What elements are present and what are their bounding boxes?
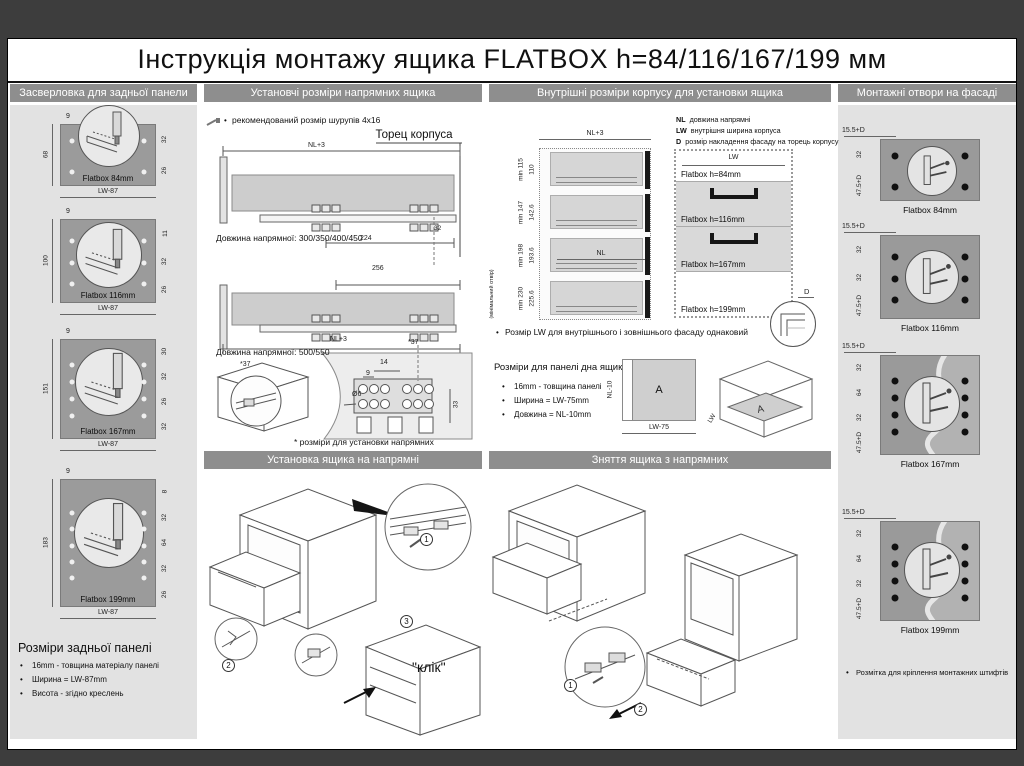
drill-hole: [962, 578, 969, 585]
screw-note: рекомендований розмір шурупів 4x16: [232, 115, 380, 125]
panel-label: Flatbox 199mm: [880, 625, 980, 635]
dim-label: 100: [43, 241, 50, 281]
install-drawing: [204, 471, 482, 739]
drill-hole: [141, 260, 146, 265]
dim-label: 47.5+D: [857, 175, 864, 196]
drill-hole: [891, 395, 898, 402]
legend-abbr: NL: [676, 115, 686, 124]
dim-label: 32: [161, 514, 168, 521]
cavity-stack: [539, 148, 651, 320]
drill-hole: [141, 414, 146, 419]
panel-label: Flatbox 167mm: [61, 427, 155, 436]
drill-hole: [962, 296, 969, 303]
dim-line: [539, 139, 651, 140]
drill-hole: [70, 281, 75, 286]
right-dims: 11 32 26: [158, 219, 172, 303]
dim-label: 33: [453, 385, 460, 425]
dim-label: 9: [366, 370, 370, 377]
step-marker: 3: [400, 615, 413, 628]
bullet-dot: •: [502, 410, 505, 419]
facade-panel-199: [880, 521, 980, 621]
right-dims: 30 32 26 32: [158, 339, 172, 439]
drill-hole: [70, 414, 75, 419]
front-strip: [645, 280, 650, 318]
right-dims: 8 32 64 32 26: [158, 479, 172, 607]
bullet-item: Довжина = NL-10mm: [514, 410, 591, 419]
bullet-dot: •: [502, 382, 505, 391]
dim-label: 15.5+D: [842, 127, 865, 134]
drill-hole: [70, 510, 75, 515]
drill-hole: [141, 397, 146, 402]
left-dims: 32 47.5+D: [846, 139, 874, 201]
bullet-item: 16mm - товщина матеріалу панелі: [32, 661, 159, 670]
right-dims: 32 26: [158, 124, 172, 186]
drill-hole: [70, 260, 75, 265]
dim-label: 26: [161, 398, 168, 405]
dim-label: 32: [856, 273, 863, 280]
header-install: Установка ящика на напрямні: [204, 451, 482, 469]
bullet-item: Висота - згідно креслень: [32, 689, 124, 698]
drill-hole: [962, 378, 969, 385]
drill-hole: [891, 561, 898, 568]
header-back-panel: Засверловка для задньої панели: [10, 84, 197, 102]
dim-label: LW-87: [60, 188, 156, 195]
drill-hole: [891, 254, 898, 261]
drill-hole: [141, 510, 146, 515]
dim-line: [60, 314, 156, 315]
dim-label: NL+3: [308, 142, 325, 149]
dim-line: [844, 352, 896, 353]
hole-grid: [61, 480, 155, 606]
dim-label: 142.6: [529, 193, 536, 233]
drawer-box-3d: A: [704, 353, 820, 445]
dim-label: 32: [856, 580, 863, 587]
drill-hole: [891, 578, 898, 585]
panel-label: Flatbox 116mm: [880, 323, 980, 333]
drill-hole: [141, 559, 146, 564]
dim-label: 64: [161, 539, 168, 546]
legend-text: довжина напрямні: [690, 115, 751, 124]
drill-hole: [962, 544, 969, 551]
cavity-row: [550, 152, 643, 186]
dim-label: 47.5+D: [857, 432, 864, 453]
back-panel-199: Flatbox 199mm: [60, 479, 156, 607]
front-strip: [645, 194, 650, 232]
drill-hole: [141, 281, 146, 286]
drill-hole: [962, 429, 969, 436]
dim-label: 9: [66, 208, 70, 215]
dim-label: min 147: [518, 193, 525, 233]
dim-label: Ø6: [352, 391, 361, 398]
front-167: Flatbox h=167mm: [676, 226, 791, 271]
dim-label: min 115: [518, 150, 525, 190]
drill-hole: [962, 561, 969, 568]
dim-label: 9: [66, 113, 70, 120]
dim-label: 32: [161, 136, 168, 143]
cabinet-front-view: LW Flatbox h=84mm Flatbox h=116mm Flatbo…: [674, 149, 793, 318]
dim-label: D: [804, 287, 809, 296]
dim-label: min 230: [518, 279, 525, 319]
rails-caption: * розміри для установки напрямних: [294, 437, 434, 447]
drill-hole: [70, 138, 75, 143]
remove-drawing: [489, 471, 831, 739]
dim-line: [52, 479, 53, 607]
rails-drawing: [204, 105, 482, 451]
dim-label: 224: [360, 235, 372, 242]
drill-hole: [962, 395, 969, 402]
dim-label: 183: [43, 523, 50, 563]
left-dims: 32 32 47.5+D: [846, 235, 874, 319]
drill-hole: [962, 183, 969, 190]
dim-label: 32: [856, 151, 863, 158]
panel-label: Flatbox 84mm: [880, 205, 980, 215]
hole-grid: [881, 522, 979, 620]
dim-line: [557, 259, 645, 260]
drill-hole: [70, 380, 75, 385]
corner-sketch-icon: [771, 302, 816, 347]
dim-label: min 198: [518, 236, 525, 276]
dim-line: [844, 136, 896, 137]
front-strip: [645, 151, 650, 189]
drill-hole: [962, 595, 969, 602]
drill-hole: [141, 239, 146, 244]
front-label: Flatbox h=84mm: [681, 170, 741, 179]
dim-label: 256: [372, 265, 384, 272]
drill-hole: [962, 412, 969, 419]
bullet-dot: •: [496, 328, 499, 337]
instruction-sheet: Інструкція монтажу ящика FLATBOX h=84/11…: [7, 38, 1017, 750]
step-marker: 2: [222, 659, 235, 672]
drill-hole: [962, 254, 969, 261]
body-end-label: Торец корпуса: [364, 129, 464, 141]
drill-hole: [891, 429, 898, 436]
panel-label: Flatbox 199mm: [61, 595, 155, 604]
min-opening-note: (мінімальний отвір): [489, 254, 495, 334]
header-rails: Установчі розміри напрямних ящика: [204, 84, 482, 102]
dim-label: NL-10: [607, 370, 614, 410]
drill-hole: [70, 543, 75, 548]
dim-label: 9: [66, 328, 70, 335]
click-label: "клік": [412, 659, 446, 675]
dim-label: 68: [43, 135, 50, 175]
legend-abbr: LW: [676, 126, 687, 135]
bullet-item: 16mm - товщина панелі: [514, 382, 602, 391]
legend-text: внутрішня ширина корпуса: [691, 126, 781, 135]
drill-hole: [891, 412, 898, 419]
dim-label: 110: [529, 150, 536, 190]
title-divider: [8, 81, 1016, 83]
dim-label: 30: [161, 348, 168, 355]
rail-sketch: [556, 306, 637, 312]
dim-label: 15.5+D: [842, 509, 865, 516]
drill-hole: [891, 152, 898, 159]
drill-hole: [70, 527, 75, 532]
front-84: LW Flatbox h=84mm: [676, 151, 791, 181]
dim-line: [622, 433, 696, 434]
dim-label: 32: [856, 530, 863, 537]
legend-abbr: D: [676, 137, 681, 146]
back-panel-footer-title: Розміри задньої панелі: [18, 641, 152, 655]
dim-label: 32: [161, 373, 168, 380]
lw-note: Розмір LW для внутрішнього і зовнішнього…: [505, 327, 748, 337]
panel-label: Flatbox 167mm: [880, 459, 980, 469]
dim-label: 32: [161, 423, 168, 430]
dim-line: [52, 339, 53, 439]
left-dims: 32 64 32 47.5+D: [846, 355, 874, 455]
hole-grid: [881, 356, 979, 454]
dim-label: 9: [66, 468, 70, 475]
panel-letter: A: [623, 384, 695, 396]
dim-label: 151: [43, 369, 50, 409]
rail-length-note-1: Довжина напрямної: 300/350/400/450: [216, 233, 363, 243]
facade-footer-note: Розмітка для кріплення монтажних штифтів: [856, 668, 1008, 677]
left-dims: 32 64 32 47.5+D: [846, 521, 874, 621]
hole-grid: [881, 140, 979, 200]
front-label: Flatbox h=199mm: [681, 305, 745, 314]
drill-hole: [891, 296, 898, 303]
bullet-dot: •: [20, 689, 23, 698]
drill-hole: [141, 380, 146, 385]
drill-hole: [141, 363, 146, 368]
facade-panel-84: [880, 139, 980, 201]
front-strip: [645, 237, 650, 275]
header-facade: Монтажні отвори на фасаді: [838, 84, 1016, 102]
dim-label: 47.5+D: [857, 598, 864, 619]
screw-icon: [206, 117, 222, 127]
panel-label: Flatbox 116mm: [61, 291, 155, 300]
back-panel-116: Flatbox 116mm: [60, 219, 156, 303]
back-panel-84: Flatbox 84mm: [60, 124, 156, 186]
overlay-detail-circle: [770, 301, 816, 347]
rail-sketch: [556, 220, 637, 226]
drill-hole: [70, 239, 75, 244]
dim-label: NL+3: [330, 336, 347, 343]
dim-line: [60, 197, 156, 198]
dim-label: 26: [161, 591, 168, 598]
bullet-dot: •: [20, 661, 23, 670]
bullet-dot: •: [502, 396, 505, 405]
dim-label: 32: [161, 565, 168, 572]
bullet-dot: •: [224, 116, 227, 125]
drill-hole: [891, 275, 898, 282]
drill-hole: [891, 595, 898, 602]
drawer-handle: [710, 233, 758, 244]
drill-hole: [141, 576, 146, 581]
dim-label: 32: [856, 364, 863, 371]
dim-line: [844, 232, 896, 233]
dim-label: 8: [162, 490, 169, 494]
dim-label: 15.5+D: [842, 343, 865, 350]
dim-label: 64: [856, 555, 863, 562]
header-body-dims: Внутрішні розміри корпусу для установки …: [489, 84, 831, 102]
cavity-row: [550, 281, 643, 315]
step-marker: 1: [420, 533, 433, 546]
dim-label: NL: [557, 250, 645, 257]
header-remove: Зняття ящика з напрямних: [489, 451, 831, 469]
drill-hole: [962, 152, 969, 159]
front-label: Flatbox h=116mm: [681, 215, 745, 224]
rail-sketch: [556, 263, 637, 269]
drill-hole: [70, 559, 75, 564]
dim-label: 32: [161, 257, 168, 264]
dim-label: 32: [856, 245, 863, 252]
step-marker: 1: [564, 679, 577, 692]
drill-hole: [141, 543, 146, 548]
front-116: Flatbox h=116mm: [676, 181, 791, 226]
dim-label: 225.6: [529, 279, 536, 319]
dim-label: *37: [240, 361, 251, 368]
back-panel-167: Flatbox 167mm: [60, 339, 156, 439]
dim-label: 193.6: [529, 236, 536, 276]
dim-label: 26: [161, 285, 168, 292]
bullet-dot: •: [20, 675, 23, 684]
bottom-panel-plan: A: [622, 359, 696, 421]
drawer-handle: [710, 188, 758, 199]
hole-grid: [881, 236, 979, 318]
bullet-item: Ширина = LW-75mm: [514, 396, 589, 405]
dim-label: LW-87: [60, 609, 156, 616]
drill-hole: [141, 527, 146, 532]
dim-label: 26: [161, 167, 168, 174]
dim-line: [798, 297, 814, 298]
rail-length-note-2: Довжина напрямної: 500/550: [216, 347, 330, 357]
dim-label: 15.5+D: [842, 223, 865, 230]
dim-line: [52, 124, 53, 186]
drill-hole: [70, 397, 75, 402]
facade-panel-167: [880, 355, 980, 455]
dim-line: [682, 165, 785, 166]
dim-label: LW-87: [60, 305, 156, 312]
dim-line: [52, 219, 53, 303]
hole-grid: [61, 340, 155, 438]
front-label: Flatbox h=167mm: [681, 260, 745, 269]
drill-hole: [141, 138, 146, 143]
drill-hole: [962, 275, 969, 282]
dim-label: NL+3: [539, 130, 651, 137]
dim-label: 11: [162, 230, 169, 237]
dim-label: 32: [434, 225, 441, 232]
dim-label: 64: [856, 389, 863, 396]
cavity-row: [550, 195, 643, 229]
rail-sketch: [556, 177, 637, 183]
legend-text: розмір накладення фасаду на торець корпу…: [685, 137, 838, 146]
drill-hole: [891, 183, 898, 190]
bullet-dot: •: [846, 668, 849, 677]
dim-line: [60, 450, 156, 451]
bullet-item: Ширина = LW-87mm: [32, 675, 107, 684]
drill-hole: [70, 363, 75, 368]
dim-label: 14: [380, 359, 388, 366]
dim-line: [844, 518, 896, 519]
page-title: Інструкція монтажу ящика FLATBOX h=84/11…: [8, 44, 1016, 75]
dim-label: *37: [408, 339, 419, 346]
dim-label: LW-87: [60, 441, 156, 448]
drill-hole: [70, 576, 75, 581]
drill-hole: [891, 544, 898, 551]
drill-hole: [891, 378, 898, 385]
panel-label: Flatbox 84mm: [61, 174, 155, 183]
step-marker: 2: [634, 703, 647, 716]
dim-label: LW-75: [622, 424, 696, 431]
dim-label: 47.5+D: [857, 294, 864, 315]
dim-label: LW: [676, 154, 791, 161]
hole-grid: [61, 220, 155, 302]
dim-line: [60, 618, 156, 619]
dim-label: 32: [856, 414, 863, 421]
facade-panel-116: [880, 235, 980, 319]
